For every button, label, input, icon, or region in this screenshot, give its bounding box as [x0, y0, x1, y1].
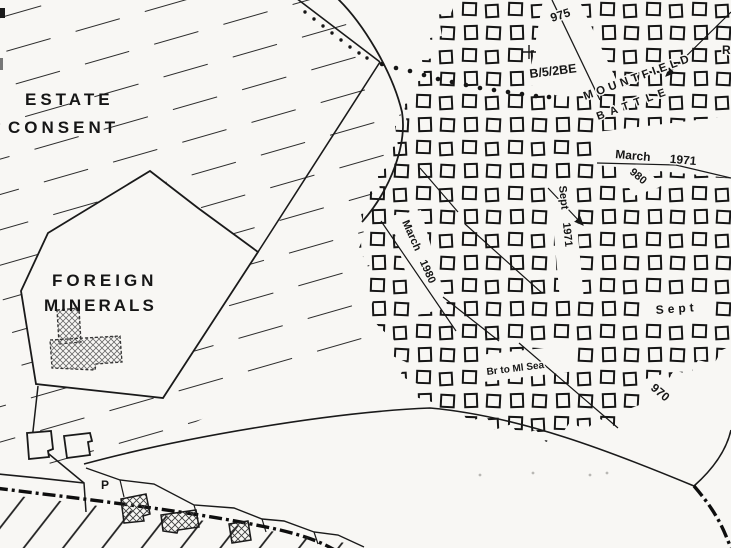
label-sept: Sept [655, 300, 698, 317]
scanned-map: ESTATE CONSENT FOREIGN MINERALS 975 B/5/… [0, 0, 731, 548]
map-canvas: ESTATE CONSENT FOREIGN MINERALS 975 B/5/… [0, 0, 731, 548]
building-hatched [229, 521, 251, 543]
label-foreign-line1: FOREIGN [52, 271, 157, 290]
label-p: P [101, 478, 109, 492]
label-estate-line1: ESTATE [25, 90, 114, 109]
building [27, 431, 53, 459]
label-estate-line2: CONSENT [8, 118, 119, 137]
building [64, 433, 92, 458]
label-fragment-r: R [722, 43, 731, 57]
label-foreign-line2: MINERALS [44, 296, 157, 315]
